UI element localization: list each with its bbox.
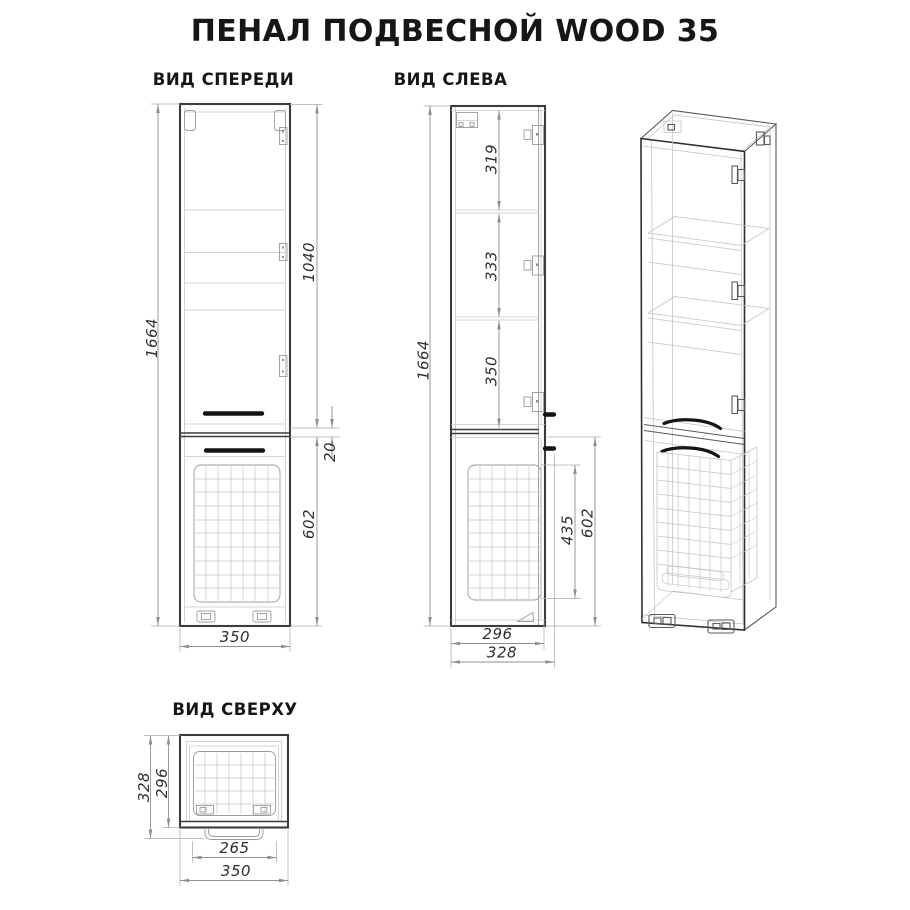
top-basket (190, 746, 279, 821)
left-hinges (524, 126, 544, 412)
left-dim-lower-door: 602 (579, 508, 597, 538)
front-dim-width: 350 (220, 628, 250, 646)
left-dim-depth-body: 296 (482, 625, 512, 643)
front-dimensions: 1664 1040 20 602 350 (143, 104, 340, 652)
front-dim-lower-door: 602 (300, 509, 318, 539)
front-dim-height: 1664 (143, 318, 161, 358)
top-clips (197, 806, 271, 815)
top-view: 328 296 265 350 (130, 725, 330, 900)
left-dim-section-mid: 333 (483, 251, 501, 281)
left-dim-section-bottom: 350 (483, 356, 501, 386)
left-dim-height: 1664 (415, 340, 433, 380)
left-dimensions: 1664 319 333 350 435 602 296 328 (415, 106, 602, 668)
iso-shelves (648, 217, 769, 355)
front-dim-upper-door: 1040 (300, 242, 318, 282)
front-door-handles (205, 414, 263, 451)
iso-carcass (641, 111, 776, 631)
front-view: 1664 1040 20 602 350 (138, 90, 370, 665)
front-dim-gap: 20 (321, 442, 339, 462)
drawing-sheet: ПЕНАЛ ПОДВЕСНОЙ WOOD 35 ВИД СПЕРЕДИ ВИД … (0, 0, 910, 910)
front-cabinet-outline (180, 104, 290, 626)
front-wall-brackets (185, 111, 286, 131)
left-view-label: ВИД СЛЕВА (357, 70, 544, 89)
front-bottom-clips (197, 611, 271, 622)
top-dim-depth-total: 328 (135, 772, 153, 802)
left-dim-section-top: 319 (483, 144, 501, 174)
top-handle (205, 828, 263, 840)
front-basket (194, 465, 280, 602)
front-door-divider (180, 424, 290, 437)
page-title: ПЕНАЛ ПОДВЕСНОЙ WOOD 35 (0, 14, 910, 49)
front-view-label: ВИД СПЕРЕДИ (130, 70, 317, 89)
left-view: 1664 319 333 350 435 602 296 328 (405, 90, 620, 675)
iso-lower-handle (662, 448, 719, 457)
top-view-label: ВИД СВЕРХУ (140, 700, 330, 719)
top-dim-width: 350 (221, 862, 251, 880)
top-dim-handle: 265 (219, 839, 249, 857)
iso-handles (662, 420, 721, 457)
left-dim-basket: 435 (559, 515, 577, 545)
left-door-divider (451, 425, 545, 438)
iso-view (615, 95, 815, 640)
left-dim-depth-total: 328 (487, 644, 517, 662)
left-basket (468, 465, 541, 600)
top-dim-depth-body: 296 (153, 768, 171, 798)
front-shelf-lines (185, 210, 286, 457)
left-wall-bracket (457, 113, 478, 128)
iso-hinges (664, 121, 770, 414)
left-door-handles (545, 415, 554, 449)
